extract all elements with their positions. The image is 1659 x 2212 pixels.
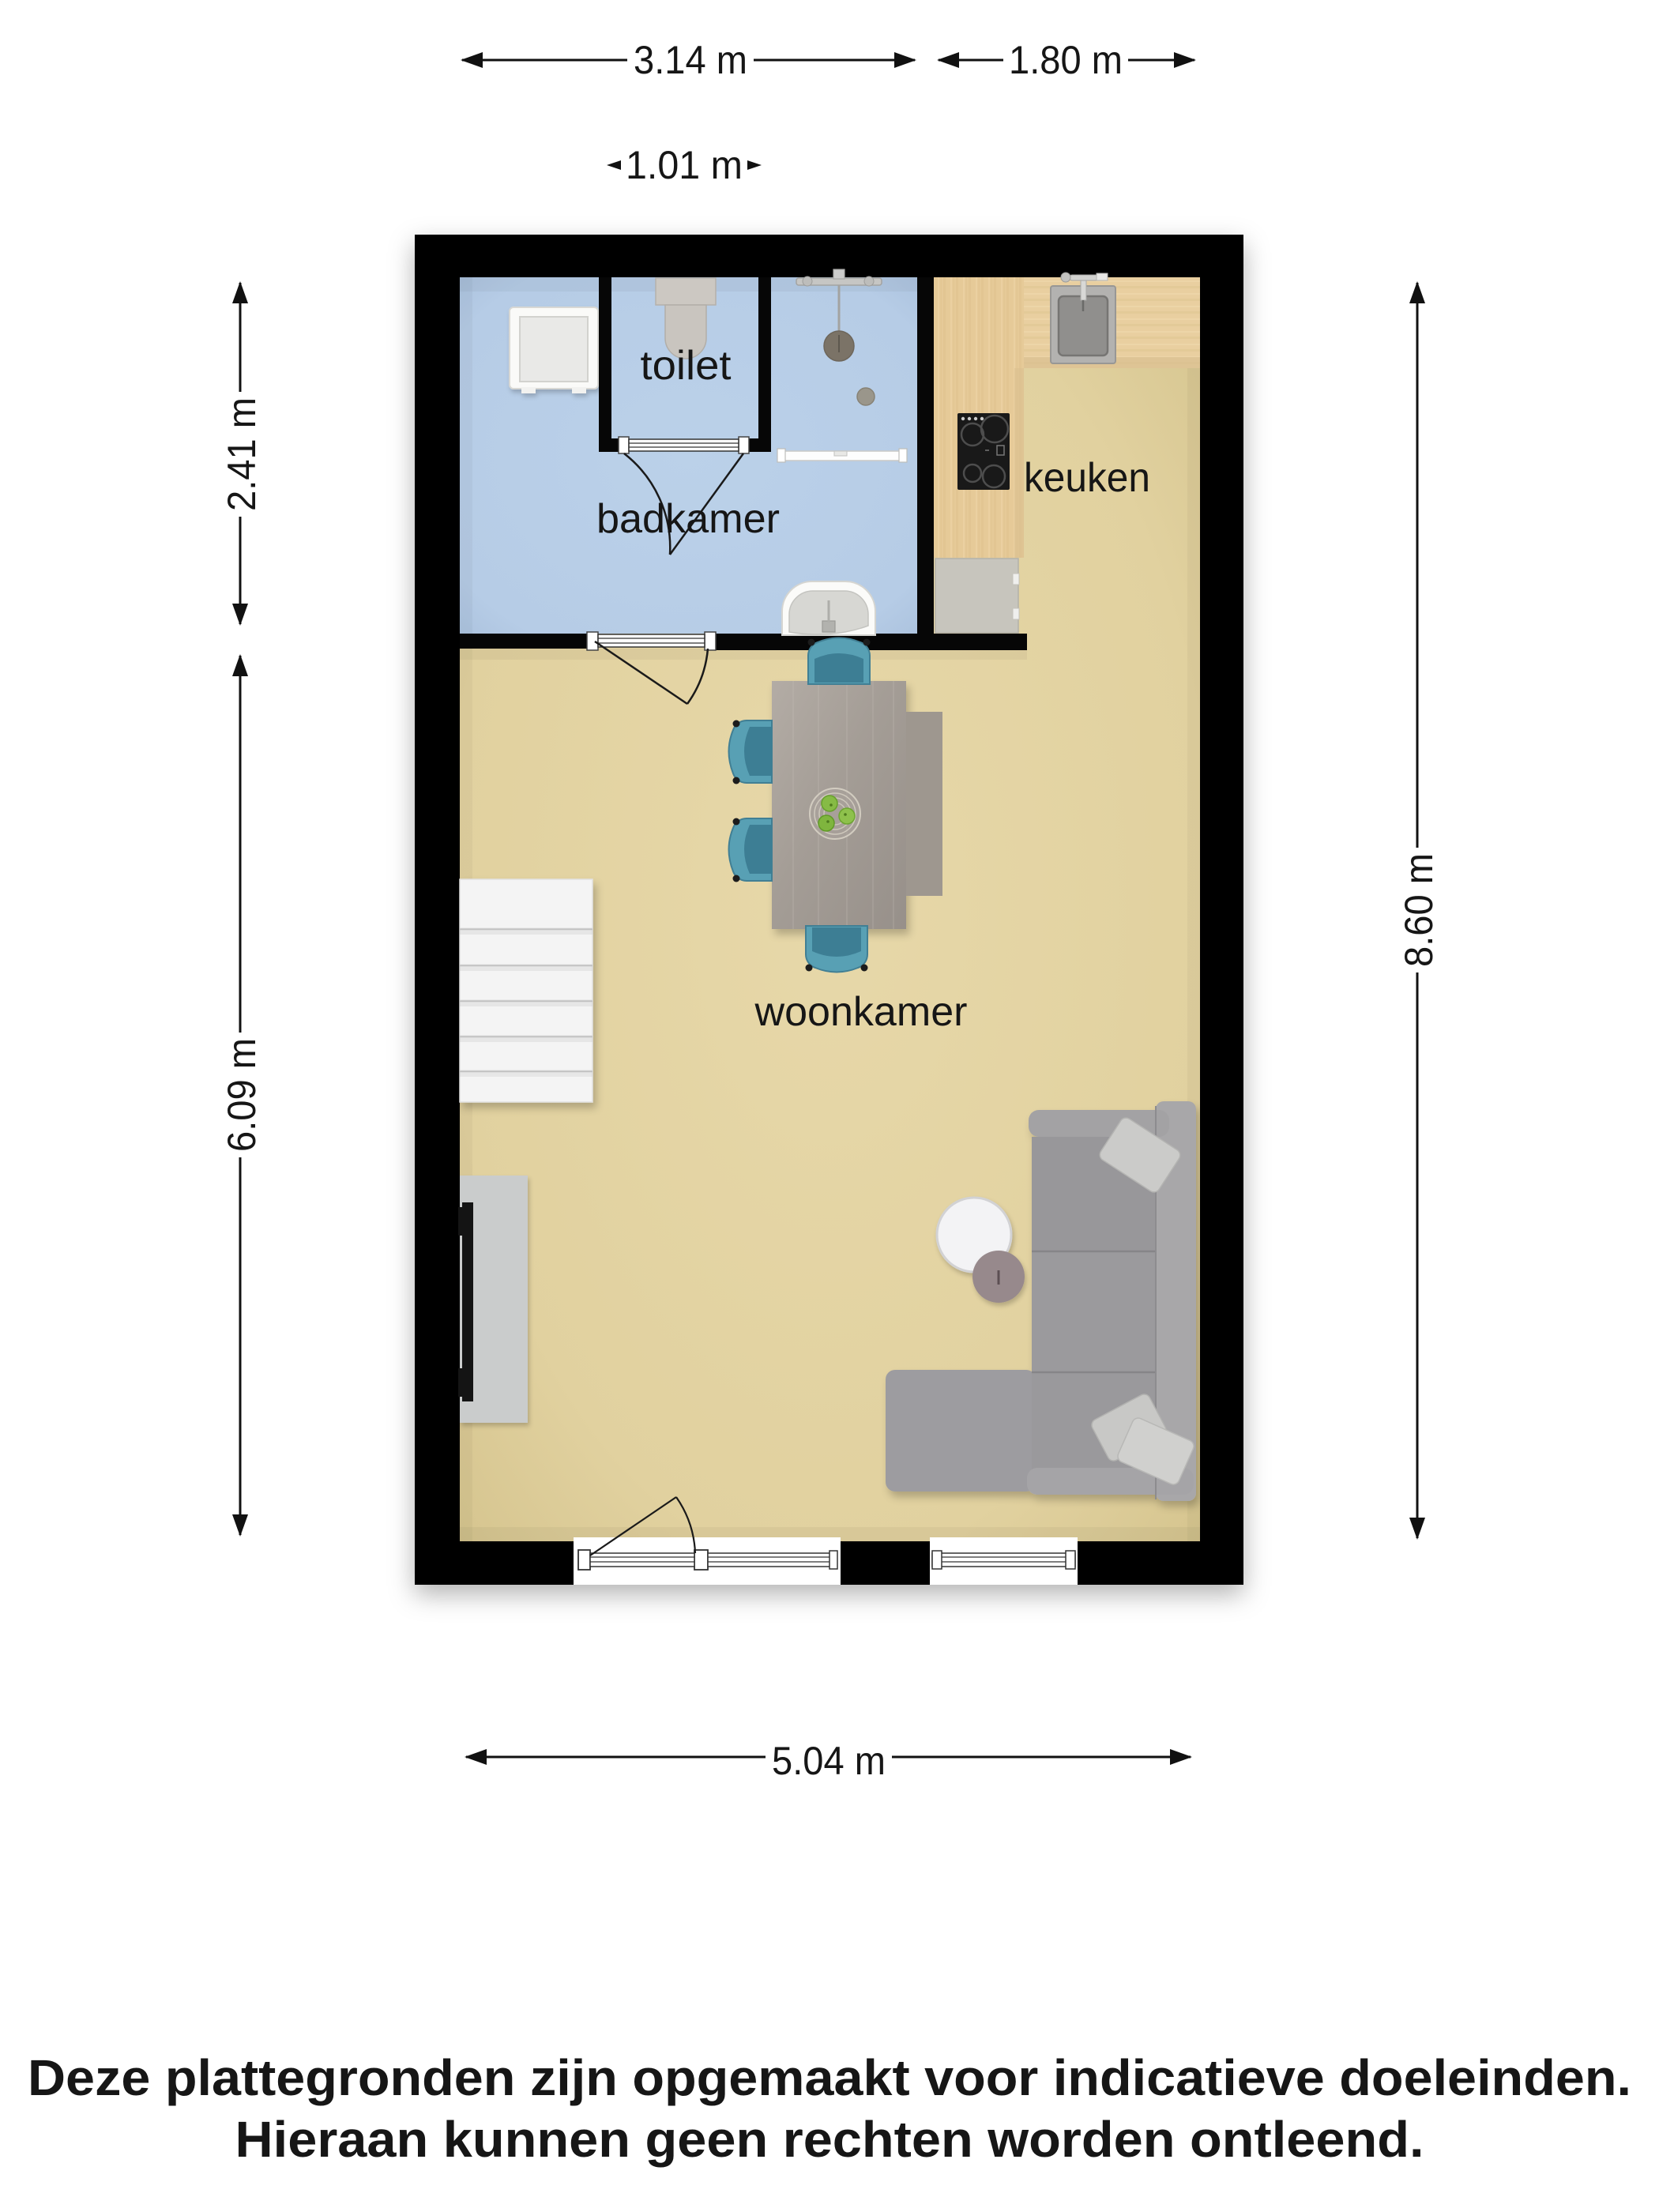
svg-text:5.04 m: 5.04 m — [772, 1739, 886, 1783]
svg-text:Deze plattegronden zijn opgema: Deze plattegronden zijn opgemaakt voor i… — [28, 2049, 1631, 2106]
svg-text:8.60 m: 8.60 m — [1397, 853, 1441, 967]
svg-text:keuken: keuken — [1024, 455, 1150, 501]
svg-text:badkamer: badkamer — [596, 496, 780, 542]
svg-text:2.41 m: 2.41 m — [220, 397, 264, 511]
svg-text:toilet: toilet — [641, 343, 732, 389]
svg-text:woonkamer: woonkamer — [754, 989, 967, 1035]
svg-text:3.14 m: 3.14 m — [634, 38, 747, 82]
svg-text:Hieraan kunnen geen rechten wo: Hieraan kunnen geen rechten worden ontle… — [235, 2111, 1424, 2168]
svg-text:1.80 m: 1.80 m — [1009, 38, 1123, 82]
svg-text:6.09 m: 6.09 m — [220, 1038, 264, 1152]
svg-text:1.01 m: 1.01 m — [626, 143, 743, 187]
